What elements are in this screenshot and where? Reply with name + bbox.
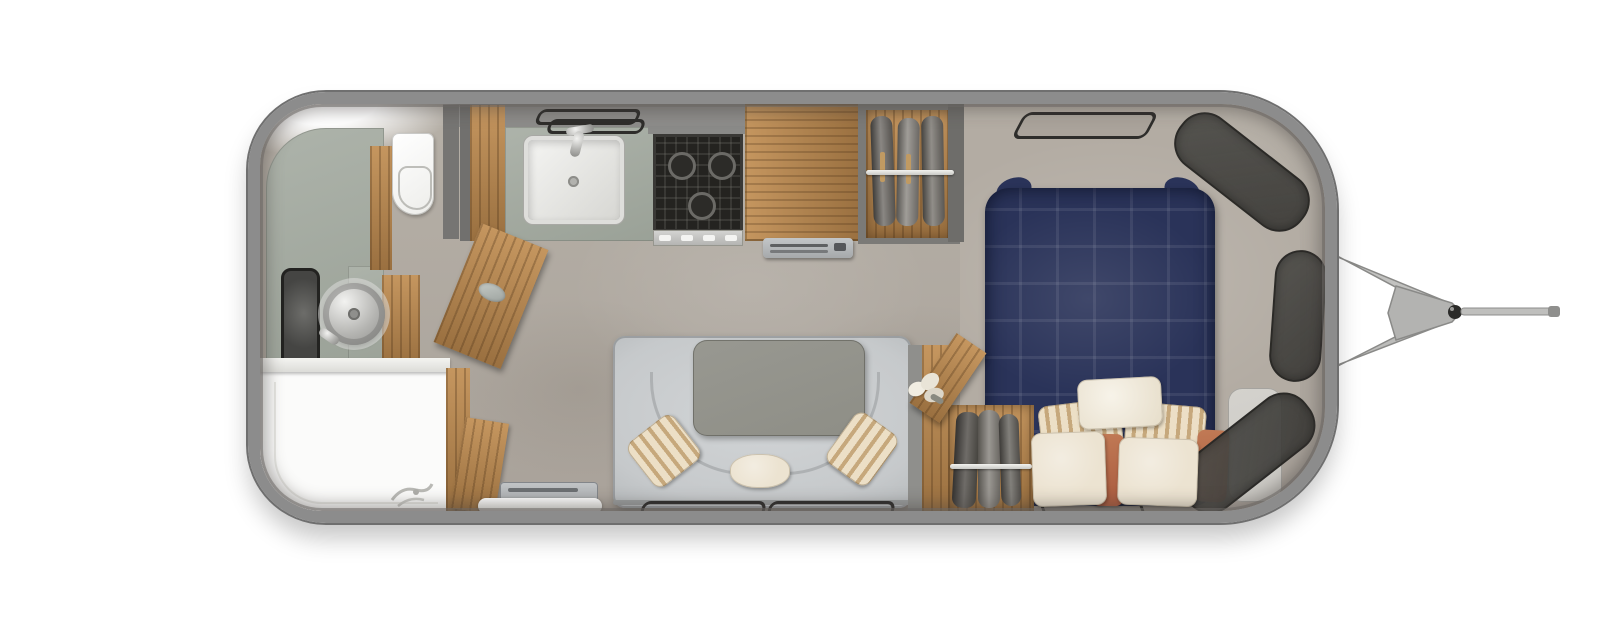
sofa-table	[693, 340, 865, 436]
corner-clothes-2	[978, 410, 1000, 508]
stove-knob-4	[725, 235, 737, 241]
wardrobe-rod	[866, 170, 954, 175]
lounge-window-left	[637, 501, 767, 511]
corner-clothes-3	[998, 414, 1021, 507]
refrigerator-vent-handle	[834, 243, 846, 251]
flower-bouquet	[906, 372, 946, 410]
stove-burner-left	[668, 152, 696, 180]
corner-divider-wall	[908, 345, 922, 511]
kitchen-window-outline-front	[545, 119, 646, 134]
hitch-coupler-ball	[1448, 305, 1462, 319]
entry-step-tread-1	[508, 488, 578, 492]
stove-burner-right	[708, 152, 736, 180]
shower-wall-ledge	[260, 358, 450, 372]
trailer-body	[248, 92, 1337, 523]
stove-knob-1	[659, 235, 671, 241]
stove-knob-2	[681, 235, 693, 241]
hitch-jack-rod	[1461, 308, 1557, 315]
bed-pillow-linen-left	[1031, 431, 1108, 508]
pantry-cabinet	[470, 105, 505, 241]
refrigerator-cabinet-top	[745, 104, 860, 241]
refrigerator-vent-slot	[770, 244, 828, 247]
stove-knob-3	[703, 235, 715, 241]
hanger-hook-1	[880, 152, 885, 182]
bathroom-wood-drawer-front	[382, 275, 420, 365]
stove-back-trim	[648, 126, 748, 134]
front-panel-middle	[1267, 248, 1325, 383]
entry-threshold	[478, 498, 602, 511]
bathroom-wall-stub	[443, 105, 459, 239]
refrigerator-vent-slot2	[770, 250, 828, 253]
vessel-sink-drain	[348, 308, 360, 320]
corner-clothes-1	[952, 411, 981, 508]
sofa-pillow-center	[730, 454, 790, 488]
toilet-seat-line	[398, 166, 432, 210]
bathroom-wood-cabinet	[370, 146, 392, 270]
hanger-hook-2	[906, 154, 911, 184]
corner-wardrobe-rod	[950, 464, 1032, 469]
trailer-interior	[260, 104, 1325, 511]
bed-pillow-white-top	[1077, 376, 1164, 430]
floorplan-canvas	[0, 0, 1600, 634]
kitchen-sink-drain	[568, 176, 579, 187]
shower-drain	[386, 476, 436, 510]
lounge-window-right	[764, 501, 896, 511]
bathroom-mirror	[281, 268, 320, 368]
bedroom-roof-window-rear	[1011, 112, 1159, 139]
stove-burner-front	[688, 192, 716, 220]
bed-pillow-linen-right	[1117, 437, 1199, 508]
pantry-recess	[460, 105, 470, 241]
